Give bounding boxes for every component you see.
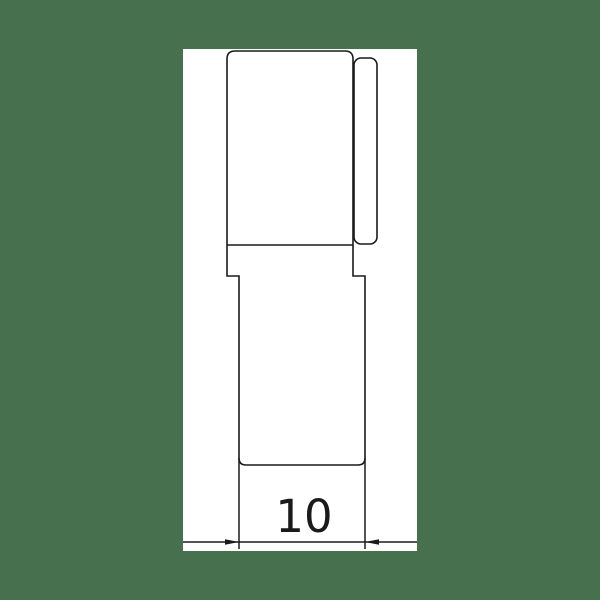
part-outline	[227, 51, 365, 465]
drawing-paper: 10	[183, 49, 417, 551]
dimension-value: 10	[275, 490, 332, 543]
app-background: { "drawing": { "type": "technical-drawin…	[0, 0, 600, 600]
side-tab-outline	[354, 58, 377, 244]
dimension-arrow-right	[365, 539, 379, 545]
technical-drawing-canvas: 10	[183, 49, 417, 551]
dimension-arrow-left	[225, 539, 239, 545]
